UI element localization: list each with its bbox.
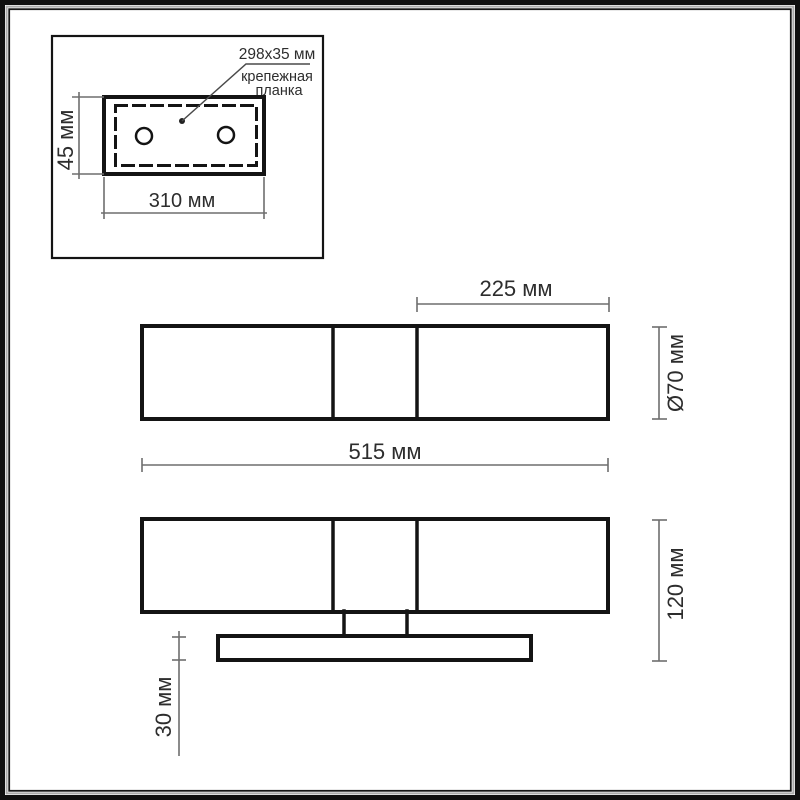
dim-label-120mm: 120 мм bbox=[663, 547, 688, 620]
plate-size-label: 298x35 мм bbox=[239, 46, 315, 63]
dim-label-515mm: 515 мм bbox=[348, 439, 421, 464]
dim-label-225mm: 225 мм bbox=[479, 276, 552, 301]
wall-plate bbox=[218, 636, 531, 660]
top-view-body bbox=[142, 326, 608, 419]
plate-name-label-line2: планка bbox=[255, 83, 303, 99]
dim-label-45mm: 45 мм bbox=[53, 110, 78, 171]
front-view-body bbox=[142, 519, 608, 612]
technical-drawing: 298x35 мм крепежная планка 45 мм 310 мм … bbox=[0, 0, 800, 800]
mounting-hole-right bbox=[218, 127, 234, 143]
dim-label-30mm: 30 мм bbox=[151, 677, 176, 738]
dim-label-70mm: Ø70 мм bbox=[663, 334, 688, 412]
dim-label-310mm: 310 мм bbox=[149, 190, 215, 212]
mounting-hole-left bbox=[136, 128, 152, 144]
mounting-plate-outline bbox=[104, 97, 264, 174]
